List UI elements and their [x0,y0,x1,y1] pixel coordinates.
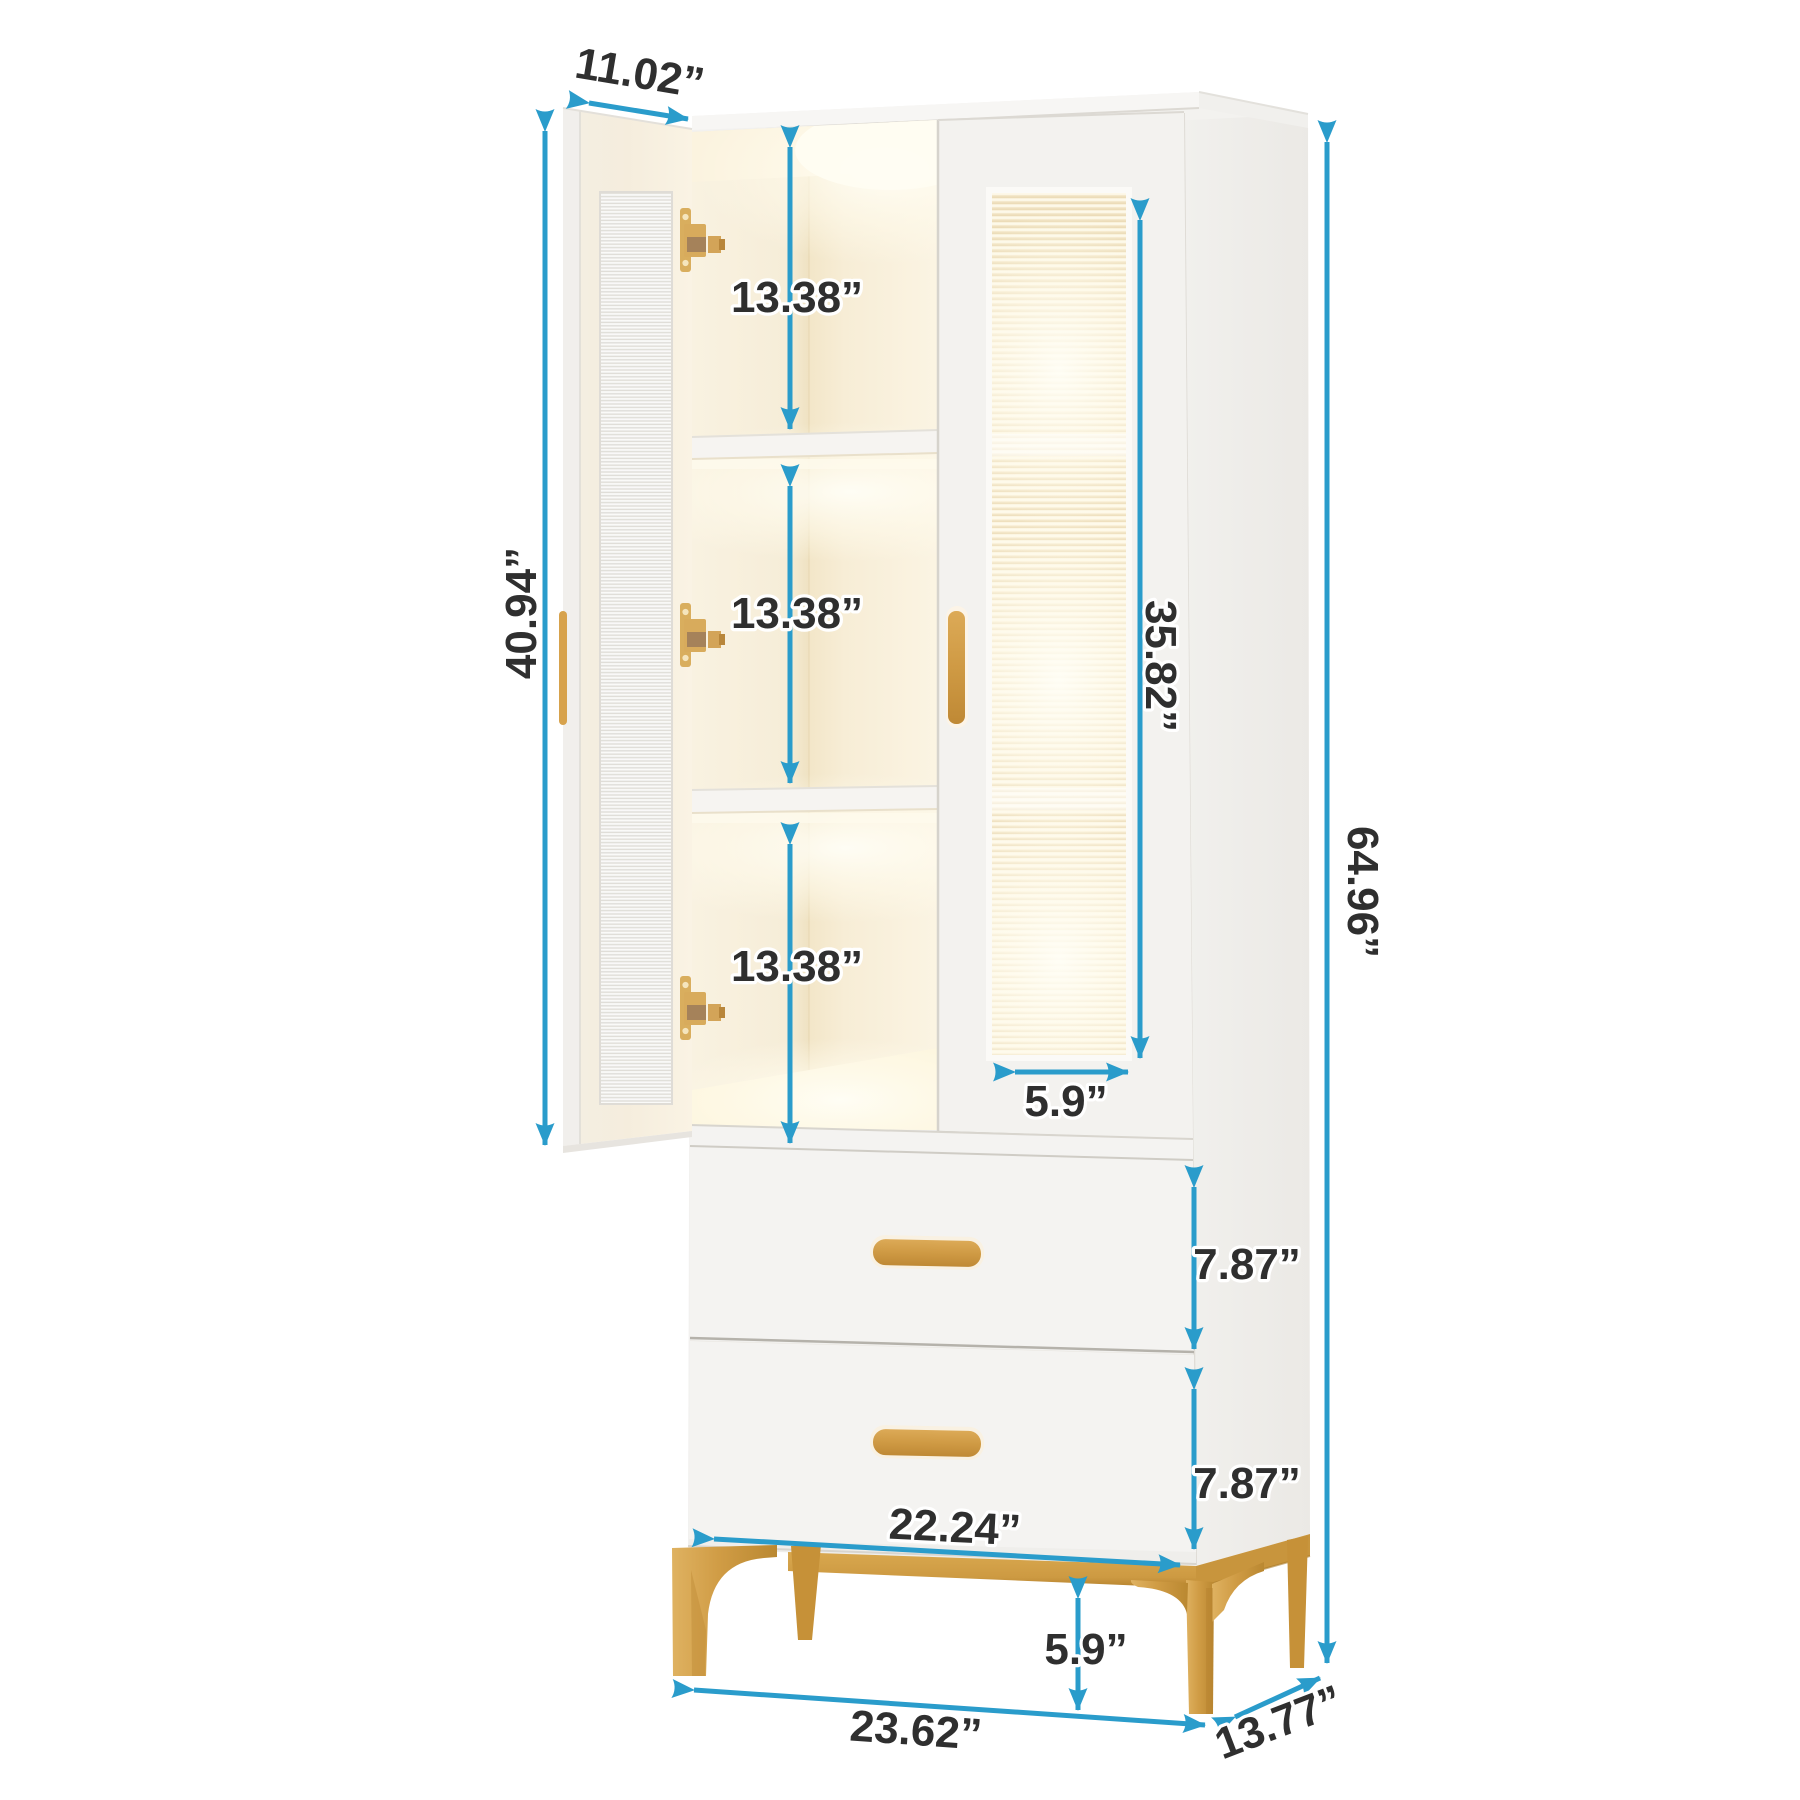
svg-text:23.62”: 23.62” [848,1701,983,1759]
svg-text:13.38”: 13.38” [731,942,863,991]
svg-text:13.38”: 13.38” [731,589,863,638]
svg-text:7.87”: 7.87” [1193,1459,1301,1508]
svg-text:5.9”: 5.9” [1024,1077,1107,1126]
svg-text:64.96”: 64.96” [1338,826,1387,958]
svg-text:22.24”: 22.24” [888,1500,1022,1556]
svg-text:13.38”: 13.38” [731,273,863,322]
svg-text:40.94”: 40.94” [497,547,546,679]
svg-text:7.87”: 7.87” [1193,1240,1301,1289]
svg-text:5.9”: 5.9” [1044,1625,1127,1674]
svg-text:35.82”: 35.82” [1136,600,1185,732]
